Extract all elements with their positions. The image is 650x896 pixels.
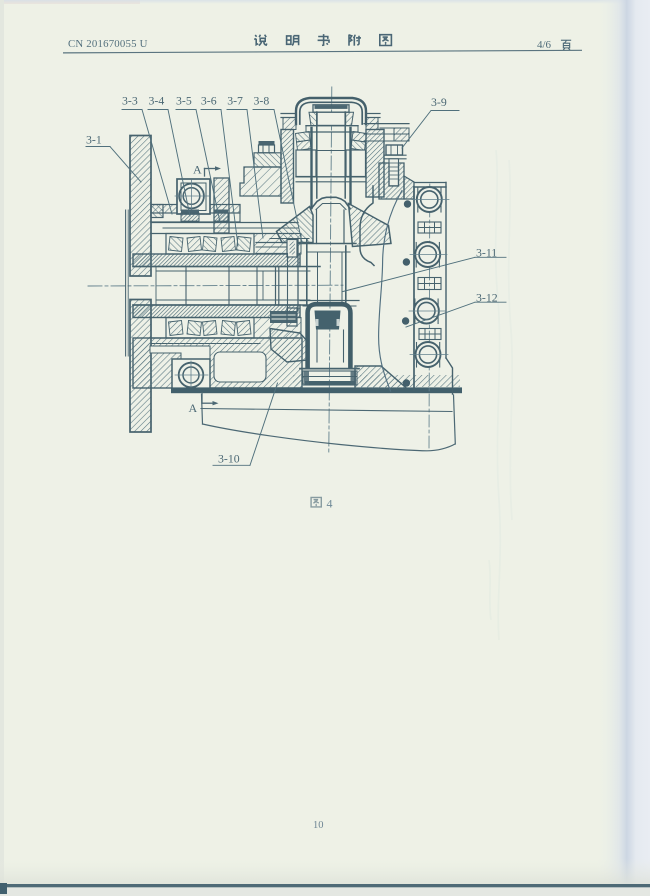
svg-text:3-4: 3-4 [149,94,165,108]
svg-text:3-11: 3-11 [476,246,497,260]
svg-text:3-8: 3-8 [254,94,270,108]
svg-text:3-6: 3-6 [201,94,217,108]
svg-text:CN 201670055 U: CN 201670055 U [68,38,148,50]
svg-text:3-1: 3-1 [86,133,102,147]
svg-text:3-3: 3-3 [122,94,138,108]
svg-text:A: A [189,401,198,415]
svg-text:3-5: 3-5 [176,94,192,108]
svg-text:3-7: 3-7 [227,94,243,108]
svg-text:4: 4 [327,497,333,511]
svg-text:3-12: 3-12 [476,291,498,305]
svg-text:3-9: 3-9 [431,95,447,109]
svg-text:10: 10 [313,820,324,831]
svg-text:A: A [193,163,202,177]
svg-text:3-10: 3-10 [218,452,240,466]
svg-text:4/6: 4/6 [537,39,552,51]
